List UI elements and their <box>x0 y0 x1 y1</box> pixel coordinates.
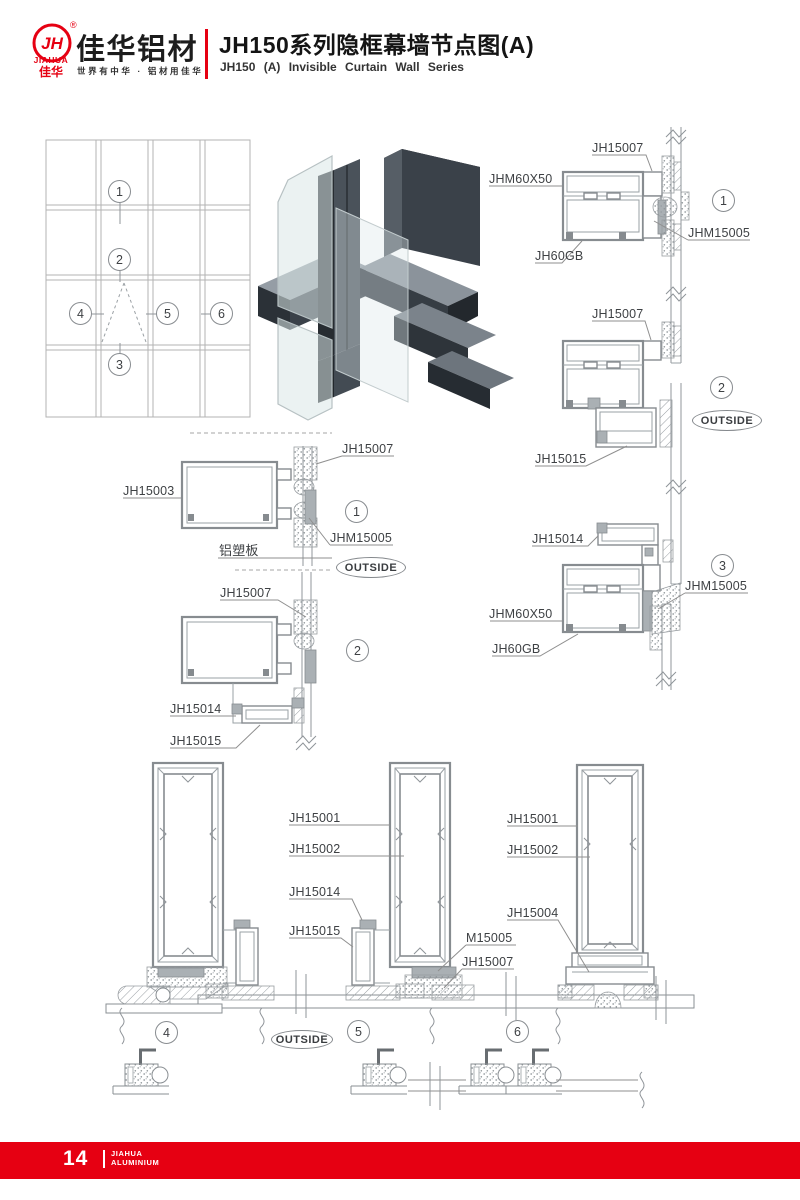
part-label: JH15007 <box>592 141 643 155</box>
detail-marker: 1 <box>712 189 735 212</box>
part-label: JH15007 <box>592 307 643 321</box>
part-label: JH15001 <box>507 812 558 826</box>
part-label: JH15002 <box>289 842 340 856</box>
detail-bottom <box>106 763 694 1110</box>
part-label: JH60GB <box>535 249 583 263</box>
part-label: JH15003 <box>123 484 174 498</box>
part-label: 铝塑板 <box>219 540 259 559</box>
footer-divider <box>103 1150 105 1168</box>
elevation-marker: 6 <box>210 302 233 325</box>
outside-label: OUTSIDE <box>692 410 762 431</box>
elevation-marker: 4 <box>69 302 92 325</box>
part-label: JH60GB <box>492 642 540 656</box>
part-label: JHM15005 <box>330 531 392 545</box>
elevation-marker: 1 <box>108 180 131 203</box>
part-label: JH15015 <box>289 924 340 938</box>
part-label: JH15015 <box>535 452 586 466</box>
part-label: JHM60X50 <box>489 172 552 186</box>
elevation-diagram <box>46 140 250 417</box>
part-label: JH15002 <box>507 843 558 857</box>
part-label: JH15007 <box>220 586 271 600</box>
detail-marker: 2 <box>710 376 733 399</box>
part-label: JH15014 <box>532 532 583 546</box>
detail-marker: 4 <box>155 1021 178 1044</box>
part-label: JH15015 <box>170 734 221 748</box>
part-label: JHM60X50 <box>489 607 552 621</box>
part-label: JH15004 <box>507 906 558 920</box>
part-label: JH15001 <box>289 811 340 825</box>
part-label: JH15007 <box>342 442 393 456</box>
part-label: M15005 <box>466 931 512 945</box>
render-3d <box>258 149 514 420</box>
footer-brand-line2: ALUMINIUM <box>111 1158 159 1167</box>
part-label: JH15014 <box>170 702 221 716</box>
outside-label: OUTSIDE <box>336 557 406 578</box>
footer-brand-line1: JIAHUA <box>111 1149 143 1158</box>
detail-marker: 2 <box>346 639 369 662</box>
part-label: JH15007 <box>462 955 513 969</box>
elevation-marker: 3 <box>108 353 131 376</box>
part-label: JHM15005 <box>685 579 747 593</box>
detail-marker: 5 <box>347 1020 370 1043</box>
elevation-marker: 5 <box>156 302 179 325</box>
detail-marker: 3 <box>711 554 734 577</box>
detail-marker: 1 <box>345 500 368 523</box>
detail-right-1 <box>489 127 750 363</box>
detail-marker: 6 <box>506 1020 529 1043</box>
part-label: JHM15005 <box>688 226 750 240</box>
page-number: 14 <box>63 1147 88 1171</box>
footer-band: 14 JIAHUA ALUMINIUM <box>0 1142 800 1179</box>
outside-label: OUTSIDE <box>271 1030 333 1049</box>
elevation-marker: 2 <box>108 248 131 271</box>
part-label: JH15014 <box>289 885 340 899</box>
